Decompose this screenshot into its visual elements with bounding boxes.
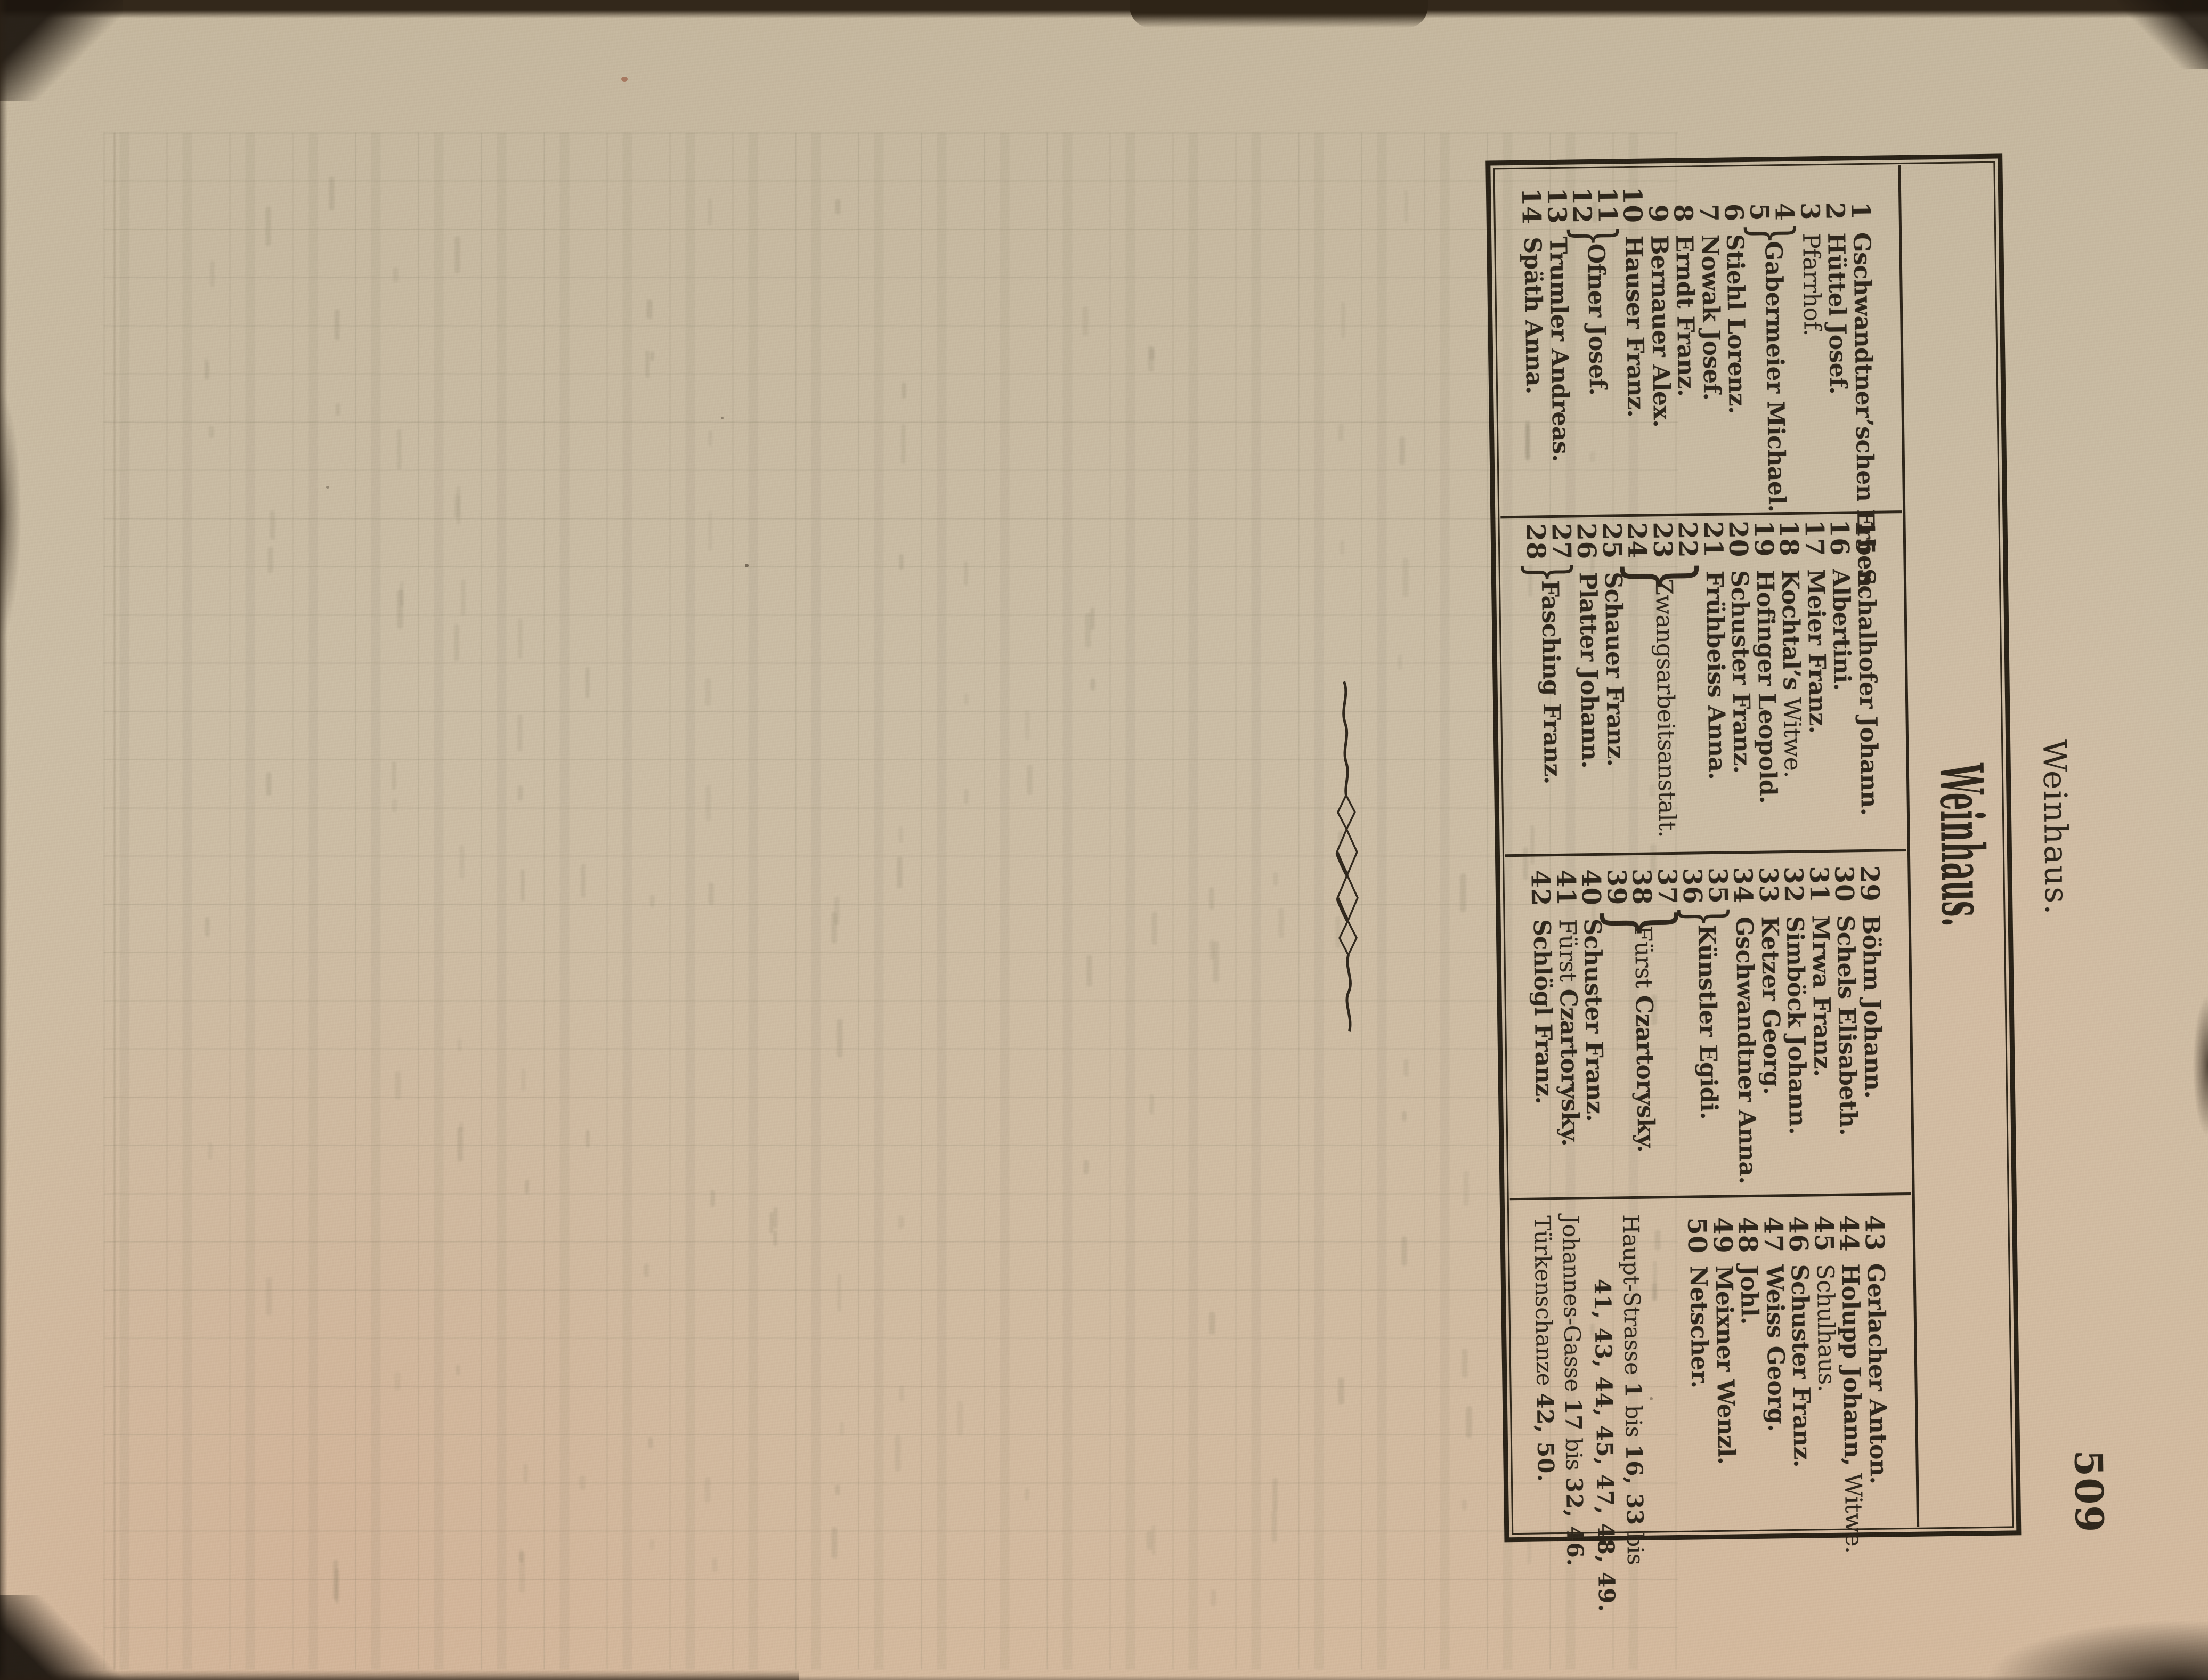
entry-name: Hüttel Josef. (1823, 232, 1850, 394)
scanned-book-page: Weinhaus. 509 Weinhaus. 1Gschwandtner’sc… (0, 0, 2208, 1680)
entry-name: Platter Johann. (1575, 572, 1602, 768)
entry-number: 42 (1527, 865, 1553, 907)
entry-name: Gschwandtner Anna. (1731, 916, 1759, 1184)
entry-name: Schulhaus. (1812, 1263, 1838, 1392)
entry-number: 44 (1836, 1209, 1862, 1252)
entry-number: 47 (1760, 1210, 1786, 1253)
entry-number: 39 (1603, 864, 1629, 906)
entry-name: Ofner Josef. (1583, 243, 1610, 395)
entry-number: 35 (1704, 862, 1731, 904)
paper-speck (326, 486, 329, 489)
entry-number: 9 (1644, 182, 1670, 223)
paper-speck (721, 417, 724, 419)
entry-name: Künstler Egidi. (1693, 924, 1720, 1119)
entry-name: Schuster Franz. (1727, 570, 1754, 773)
entry-number: 19 (1750, 516, 1776, 557)
entry-name: Weiss Georg. (1761, 1264, 1788, 1432)
entry-number: 43 (1861, 1208, 1887, 1252)
entry-number: 29 (1856, 860, 1882, 902)
entry-name: Pfarrhof. (1798, 233, 1824, 336)
entry-number: 13 (1543, 183, 1569, 224)
entry-number: 15 (1852, 515, 1878, 556)
entry-number: 20 (1725, 516, 1751, 557)
entry-name: Mrwa Franz. (1807, 915, 1834, 1076)
entry-name: Schels Elisabeth. (1832, 915, 1860, 1135)
entry-number: 36 (1679, 863, 1705, 905)
entry-name: Schuster Franz. (1579, 918, 1606, 1122)
entry-name: Frühbeiss Anna. (1701, 570, 1729, 780)
paper-speck (1650, 1397, 1653, 1400)
entry-number: 5 (1746, 181, 1772, 222)
entry-name: Johl. (1736, 1264, 1761, 1324)
entry-number: 45 (1811, 1209, 1837, 1252)
entry-number: 48 (1734, 1210, 1760, 1253)
entry-name: Kochtal’s Witwe. (1777, 569, 1805, 778)
entry-number: 7 (1695, 181, 1721, 222)
entry-name: Hauser Franz. (1621, 235, 1648, 417)
street-summary-line: Haupt-Strasse 1 bis 16, 33 bis (1618, 1214, 1649, 1565)
section-divider-ornament-icon (1333, 680, 1360, 1033)
entry-number: 31 (1806, 861, 1832, 903)
entry-number: 8 (1670, 182, 1696, 223)
entry-name: Schlögl Franz. (1529, 919, 1556, 1104)
entry-name: Fürst Czartorysky. (1554, 919, 1582, 1146)
entry-number: 2 (1822, 180, 1848, 221)
entry-number: 4 (1771, 180, 1797, 221)
entry-name: Stiehl Lorenz. (1722, 233, 1749, 413)
entry-number: 23 (1649, 517, 1675, 558)
entry-number: 28 (1522, 520, 1548, 561)
entry-number: 27 (1548, 519, 1574, 560)
entry-number: 24 (1623, 518, 1650, 559)
entry-number: 33 (1755, 862, 1781, 904)
street-summary-line: Türkenschanze 42, 50. (1529, 1215, 1559, 1482)
entry-name: Gabermeier Michael. (1760, 241, 1788, 513)
entry-number: 41 (1553, 864, 1579, 906)
entry-name: Trumler Andreas. (1545, 236, 1572, 462)
entry-number: 30 (1831, 861, 1857, 903)
entry-name: Simböck Johann. (1782, 915, 1809, 1134)
page-number: 509 (2065, 1382, 2112, 1533)
entry-name: Nowak Josef. (1696, 234, 1723, 400)
entry-number: 12 (1569, 183, 1595, 224)
entry-number: 37 (1654, 863, 1680, 905)
entry-name: Schalhofer Johann. (1853, 568, 1881, 815)
entry-number: 6 (1720, 181, 1747, 222)
entry-number: 49 (1709, 1211, 1735, 1254)
entry-number: 14 (1518, 184, 1544, 225)
entry-name: Holupp Johann, Witwe. (1837, 1263, 1866, 1553)
entry-name: Meixner Wenzl. (1711, 1265, 1738, 1465)
paper-speck (621, 77, 628, 82)
entry-number: 22 (1674, 517, 1700, 558)
house-directory-table: 1Gschwandtner’schen Erben.2Hüttel Josef.… (2196, 0, 2208, 1665)
entry-number: 11 (1594, 183, 1620, 224)
entry-name: Schuster Franz. (1787, 1264, 1814, 1467)
entry-number: 40 (1578, 864, 1604, 906)
printed-content: Weinhaus. 509 Weinhaus. 1Gschwandtner’sc… (0, 0, 2208, 1680)
entry-number: 16 (1826, 515, 1852, 556)
street-summary-line: Johannes-Gasse 17 bis 32, 46. (1557, 1215, 1588, 1567)
entry-name: Böhm Johann. (1858, 914, 1885, 1098)
section-title: Weinhaus. (1922, 520, 2001, 1170)
paper-sheet: Weinhaus. 509 Weinhaus. 1Gschwandtner’sc… (0, 0, 2208, 1680)
entry-name: Fasching Franz. (1537, 580, 1564, 784)
entry-name: Bernauer Alex. (1646, 234, 1673, 427)
entry-number: 26 (1573, 518, 1599, 559)
entry-number: 38 (1628, 863, 1654, 905)
entry-number: 50 (1684, 1211, 1710, 1254)
entry-number: 10 (1619, 182, 1645, 223)
entry-number: 3 (1796, 180, 1822, 221)
entry-name: Zwangsarbeitsanstalt. (1651, 578, 1679, 837)
entry-name: Netscher. (1685, 1265, 1711, 1389)
entry-number: 17 (1801, 515, 1827, 556)
entry-number: 21 (1700, 517, 1726, 558)
entry-name: Schauer Franz. (1600, 572, 1627, 767)
entry-name: Hofinger Leopold. (1752, 570, 1780, 804)
entry-name: Gerlacher Anton. (1863, 1263, 1890, 1484)
entry-number: 34 (1730, 862, 1756, 904)
entry-name: Erndt Franz. (1671, 234, 1698, 396)
entry-number: 1 (1847, 179, 1873, 220)
entry-name: Meier Franz. (1803, 569, 1829, 733)
entry-number: 25 (1598, 518, 1625, 559)
entry-number: 32 (1780, 861, 1806, 903)
entry-number: 18 (1775, 516, 1801, 557)
entry-name: Fürst Czartorysky. (1630, 925, 1658, 1153)
entry-name: Späth Anna. (1520, 237, 1546, 394)
street-summary-line: 41, 43, 44, 45, 47, 48, 49. (1589, 1278, 1620, 1612)
entry-number: 46 (1785, 1210, 1811, 1253)
entry-name: Ketzer Georg. (1757, 916, 1784, 1094)
paper-speck (745, 564, 749, 567)
entry-name: Albertini. (1828, 569, 1854, 691)
